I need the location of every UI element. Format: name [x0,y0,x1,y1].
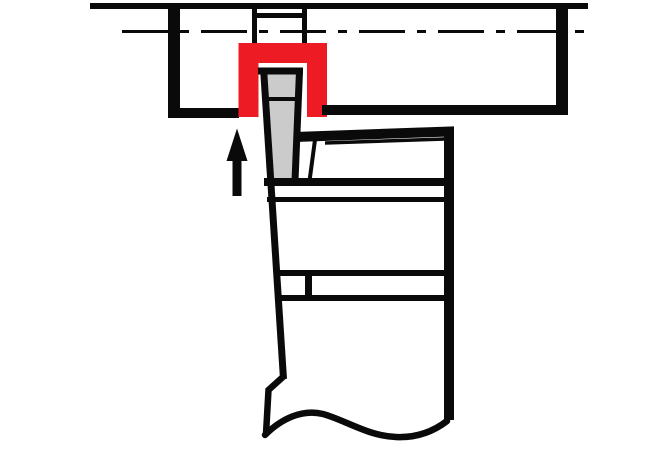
technical-diagram [0,0,670,460]
diagram-canvas [0,0,670,460]
clamp-diagonal-line [310,136,316,181]
break-line [265,413,447,437]
feed-arrow [227,129,248,197]
insert-right-edge [295,71,300,181]
